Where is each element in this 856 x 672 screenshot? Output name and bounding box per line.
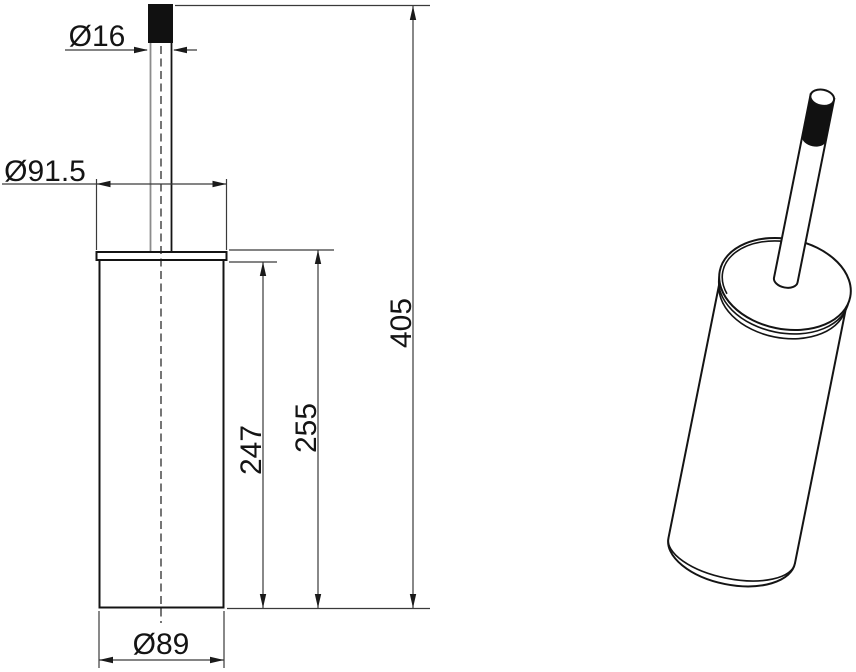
iso-view — [660, 77, 856, 597]
arrowhead — [134, 47, 148, 53]
handle-grip — [148, 4, 173, 43]
iso-container-body — [662, 282, 846, 597]
dim-container-diameter-label: Ø89 — [133, 628, 190, 661]
front-view: Ø16 Ø91.5 247 255 — [2, 4, 430, 668]
arrowhead — [315, 594, 321, 608]
dim-overall-height-label: 405 — [385, 298, 418, 348]
arrowhead — [410, 594, 416, 608]
arrowhead — [173, 47, 187, 53]
dim-handle-diameter: Ø16 — [65, 20, 197, 53]
dim-handle-diameter-label: Ø16 — [69, 20, 126, 53]
dim-head-diameter-label: Ø91.5 — [4, 155, 86, 188]
technical-drawing: Ø16 Ø91.5 247 255 — [0, 0, 856, 672]
drawing-svg: Ø16 Ø91.5 247 255 — [0, 0, 856, 672]
dim-head-diameter: Ø91.5 — [2, 155, 227, 250]
dim-container-with-lid-height-label: 255 — [290, 403, 323, 453]
dim-overall-height: 405 — [175, 6, 430, 609]
arrowhead — [210, 657, 224, 663]
dim-container-diameter: Ø89 — [99, 611, 224, 668]
arrowhead — [260, 262, 266, 276]
arrowhead — [315, 250, 321, 264]
arrowhead — [410, 6, 416, 20]
dim-container-height-label: 247 — [235, 425, 268, 475]
arrowhead — [97, 181, 111, 187]
dim-container-height: 247 — [229, 262, 277, 608]
arrowhead — [99, 657, 113, 663]
arrowhead — [213, 181, 227, 187]
arrowhead — [260, 594, 266, 608]
